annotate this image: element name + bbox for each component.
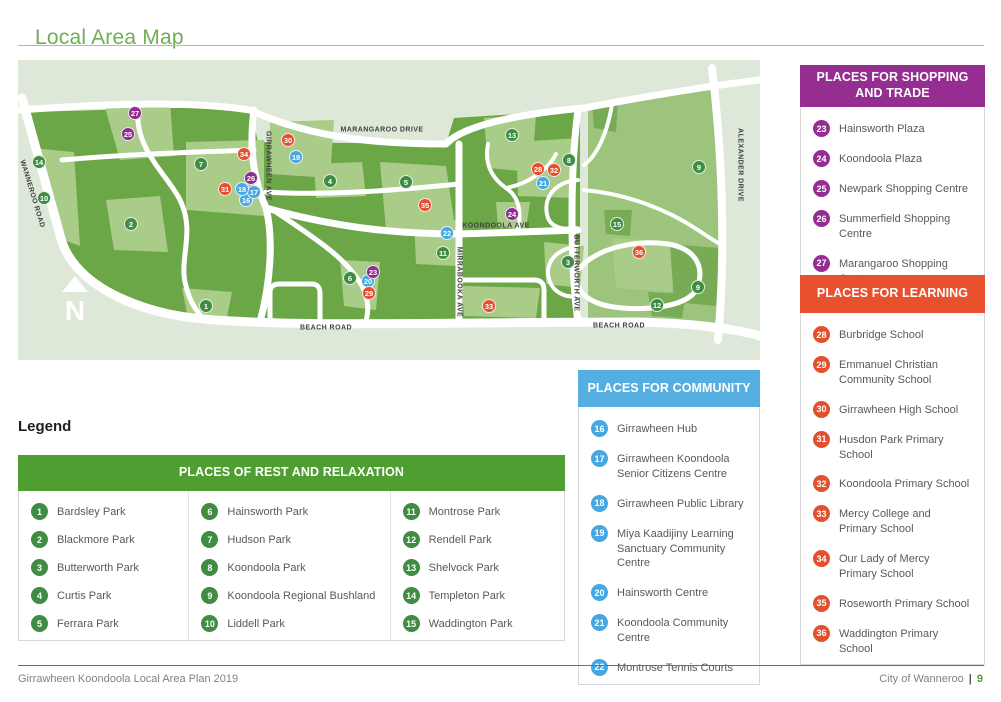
map-marker: 21 (536, 176, 550, 190)
legend-item: 24Koondoola Plaza (813, 150, 972, 167)
legend-panel-community-title: PLACES FOR COMMUNITY (578, 370, 760, 407)
legend-item: 28Burbridge School (813, 326, 972, 343)
item-number-badge: 27 (813, 255, 830, 272)
footer-divider (18, 665, 984, 666)
legend-panel-learning-title: PLACES FOR LEARNING (800, 275, 985, 313)
item-label: Girrawheen Hub (617, 420, 697, 437)
item-label: Montrose Tennis Courts (617, 659, 733, 676)
item-label: Koondoola Community Centre (617, 614, 747, 646)
document-page: Local Area Map (0, 0, 1001, 702)
item-label: Summerfield Shopping Centre (839, 210, 972, 242)
item-label: Curtis Park (57, 587, 111, 604)
item-label: Shelvock Park (429, 559, 499, 576)
legend-panel-shopping-title: PLACES FOR SHOPPING AND TRADE (800, 65, 985, 107)
legend-item: 33Mercy College and Primary School (813, 505, 972, 537)
item-number-badge: 30 (813, 401, 830, 418)
item-number-badge: 9 (201, 587, 218, 604)
map-marker: 8 (562, 153, 576, 167)
item-number-badge: 1 (31, 503, 48, 520)
item-label: Koondoola Park (227, 559, 305, 576)
legend-item: 20Hainsworth Centre (591, 584, 747, 601)
map-marker: 34 (237, 147, 251, 161)
map-marker: 19 (289, 150, 303, 164)
map-marker: 15 (610, 217, 624, 231)
item-label: Husdon Park Primary School (839, 431, 972, 463)
legend-column: 11Montrose Park12Rendell Park13Shelvock … (390, 491, 564, 640)
item-number-badge: 36 (813, 625, 830, 642)
item-label: Girrawheen High School (839, 401, 958, 418)
footer-publisher-name: City of Wanneroo (879, 673, 964, 685)
legend-item: 13Shelvock Park (403, 559, 556, 576)
legend-item: 25Newpark Shopping Centre (813, 180, 972, 197)
item-number-badge: 32 (813, 475, 830, 492)
map-marker: 5 (399, 175, 413, 189)
item-number-badge: 20 (591, 584, 608, 601)
legend-item: 34Our Lady of Mercy Primary School (813, 550, 972, 582)
page-title: Local Area Map (35, 26, 184, 50)
item-label: Butterworth Park (57, 559, 139, 576)
legend-panel-rest-list: 1Bardsley Park2Blackmore Park3Butterwort… (18, 491, 565, 641)
item-number-badge: 13 (403, 559, 420, 576)
map-marker: 9 (692, 160, 706, 174)
legend-item: 11Montrose Park (403, 503, 556, 520)
legend-column: 1Bardsley Park2Blackmore Park3Butterwort… (19, 491, 188, 640)
item-number-badge: 16 (591, 420, 608, 437)
item-number-badge: 11 (403, 503, 420, 520)
title-divider (18, 45, 984, 46)
road-label: BUTTERWORTH AVE (573, 234, 580, 311)
item-label: Girrawheen Koondoola Senior Citizens Cen… (617, 450, 730, 482)
item-number-badge: 7 (201, 531, 218, 548)
item-number-badge: 25 (813, 180, 830, 197)
map-marker: 33 (482, 299, 496, 313)
legend-panel-learning-list: 28Burbridge School29Emmanuel Christian C… (800, 313, 985, 665)
item-number-badge: 10 (201, 615, 218, 632)
legend-heading: Legend (18, 418, 71, 435)
legend-column: 6Hainsworth Park7Hudson Park8Koondoola P… (188, 491, 389, 640)
item-number-badge: 18 (591, 495, 608, 512)
item-label: Our Lady of Mercy Primary School (839, 550, 929, 582)
item-label: Rendell Park (429, 531, 492, 548)
map-marker: 14 (32, 155, 46, 169)
item-number-badge: 23 (813, 120, 830, 137)
map-marker: 9 (691, 280, 705, 294)
legend-item: 22Montrose Tennis Courts (591, 659, 747, 676)
legend-item: 2Blackmore Park (31, 531, 180, 548)
legend-item: 23Hainsworth Plaza (813, 120, 972, 137)
item-label: Montrose Park (429, 503, 501, 520)
item-number-badge: 22 (591, 659, 608, 676)
item-label: Templeton Park (429, 587, 505, 604)
map-marker: 36 (632, 245, 646, 259)
map-marker: 4 (323, 174, 337, 188)
item-label: Miya Kaadijiny Learning Sanctuary Commun… (617, 525, 747, 572)
map-marker: 2 (124, 217, 138, 231)
compass-north-label: N (65, 295, 85, 326)
map-marker: 31 (218, 182, 232, 196)
item-label: Liddell Park (227, 615, 284, 632)
map-marker: 28 (531, 162, 545, 176)
map-marker: 35 (418, 198, 432, 212)
item-number-badge: 29 (813, 356, 830, 373)
item-number-badge: 2 (31, 531, 48, 548)
item-label: Waddington Primary School (839, 625, 972, 657)
legend-item: 14Templeton Park (403, 587, 556, 604)
legend-item: 6Hainsworth Park (201, 503, 381, 520)
legend-panel-shopping-list: 23Hainsworth Plaza24Koondoola Plaza25New… (800, 107, 985, 295)
legend-item: 26Summerfield Shopping Centre (813, 210, 972, 242)
legend-item: 36Waddington Primary School (813, 625, 972, 657)
legend-item: 18Girrawheen Public Library (591, 495, 747, 512)
item-label: Emmanuel Christian Community School (839, 356, 938, 388)
item-label: Waddington Park (429, 615, 513, 632)
road-label: KOONDOOLA AVE (462, 223, 529, 230)
map-marker: 24 (505, 207, 519, 221)
map-marker: 1 (199, 299, 213, 313)
legend-item: 19Miya Kaadijiny Learning Sanctuary Comm… (591, 525, 747, 572)
item-label: Hainsworth Park (227, 503, 308, 520)
road-label: MARANGAROO DRIVE (340, 127, 423, 134)
item-number-badge: 8 (201, 559, 218, 576)
map-marker: 29 (362, 286, 376, 300)
footer-document-title: Girrawheen Koondoola Local Area Plan 201… (18, 673, 238, 685)
item-number-badge: 12 (403, 531, 420, 548)
legend-panel-shopping: PLACES FOR SHOPPING AND TRADE 23Hainswor… (800, 65, 985, 295)
legend-item: 16Girrawheen Hub (591, 420, 747, 437)
map-marker: 12 (650, 298, 664, 312)
legend-item: 29Emmanuel Christian Community School (813, 356, 972, 388)
item-number-badge: 31 (813, 431, 830, 448)
item-label: Burbridge School (839, 326, 923, 343)
map-marker: 11 (436, 246, 450, 260)
legend-item: 35Roseworth Primary School (813, 595, 972, 612)
map-marker: 13 (505, 128, 519, 142)
item-label: Girrawheen Public Library (617, 495, 744, 512)
legend-item: 21Koondoola Community Centre (591, 614, 747, 646)
item-number-badge: 6 (201, 503, 218, 520)
map-marker: 3 (561, 255, 575, 269)
map-marker: 17 (247, 185, 261, 199)
item-number-badge: 14 (403, 587, 420, 604)
legend-item: 4Curtis Park (31, 587, 180, 604)
item-label: Hainsworth Centre (617, 584, 708, 601)
item-number-badge: 3 (31, 559, 48, 576)
item-label: Ferrara Park (57, 615, 119, 632)
legend-panel-learning: PLACES FOR LEARNING 28Burbridge School29… (800, 275, 985, 665)
legend-item: 10Liddell Park (201, 615, 381, 632)
item-number-badge: 15 (403, 615, 420, 632)
footer-page-number: 9 (977, 673, 983, 685)
legend-item: 3Butterworth Park (31, 559, 180, 576)
legend-item: 17Girrawheen Koondoola Senior Citizens C… (591, 450, 747, 482)
legend-item: 9Koondoola Regional Bushland (201, 587, 381, 604)
item-number-badge: 17 (591, 450, 608, 467)
item-label: Mercy College and Primary School (839, 505, 931, 537)
item-number-badge: 21 (591, 614, 608, 631)
legend-item: 15Waddington Park (403, 615, 556, 632)
footer-publisher: City of Wanneroo|9 (879, 673, 983, 685)
map-marker: 23 (366, 265, 380, 279)
legend-item: 32Koondoola Primary School (813, 475, 972, 492)
legend-item: 8Koondoola Park (201, 559, 381, 576)
item-number-badge: 19 (591, 525, 608, 542)
road-label: GIRRAWHEEN AVE (265, 131, 272, 201)
map-marker: 30 (281, 133, 295, 147)
item-label: Bardsley Park (57, 503, 125, 520)
item-label: Newpark Shopping Centre (839, 180, 968, 197)
footer-separator: | (969, 673, 972, 685)
map-marker: 27 (128, 106, 142, 120)
item-number-badge: 4 (31, 587, 48, 604)
item-number-badge: 35 (813, 595, 830, 612)
legend-item: 7Hudson Park (201, 531, 381, 548)
item-label: Koondoola Plaza (839, 150, 922, 167)
road-label: MIRRABOOKA AVE (456, 247, 463, 318)
map-marker: 6 (343, 271, 357, 285)
item-number-badge: 26 (813, 210, 830, 227)
item-number-badge: 33 (813, 505, 830, 522)
legend-panel-rest-title: PLACES OF REST AND RELAXATION (18, 455, 565, 491)
map-marker: 26 (244, 171, 258, 185)
road-label: BEACH ROAD (593, 323, 645, 330)
item-label: Koondoola Primary School (839, 475, 969, 492)
legend-panel-rest: PLACES OF REST AND RELAXATION 1Bardsley … (18, 455, 565, 641)
map-marker: 7 (194, 157, 208, 171)
item-number-badge: 34 (813, 550, 830, 567)
map-marker: 10 (37, 191, 51, 205)
item-number-badge: 5 (31, 615, 48, 632)
item-number-badge: 28 (813, 326, 830, 343)
legend-item: 1Bardsley Park (31, 503, 180, 520)
legend-panel-community-list: 16Girrawheen Hub17Girrawheen Koondoola S… (578, 407, 760, 685)
item-label: Roseworth Primary School (839, 595, 969, 612)
item-label: Hainsworth Plaza (839, 120, 925, 137)
legend-item: 5Ferrara Park (31, 615, 180, 632)
legend-item: 31Husdon Park Primary School (813, 431, 972, 463)
road-label: ALEXANDER DRIVE (737, 128, 744, 202)
map-marker: 22 (440, 226, 454, 240)
item-label: Hudson Park (227, 531, 291, 548)
map-marker: 25 (121, 127, 135, 141)
item-number-badge: 24 (813, 150, 830, 167)
legend-item: 30Girrawheen High School (813, 401, 972, 418)
legend-item: 12Rendell Park (403, 531, 556, 548)
legend-panel-community: PLACES FOR COMMUNITY 16Girrawheen Hub17G… (578, 370, 760, 685)
road-label: BEACH ROAD (300, 325, 352, 332)
local-area-map: N MARANGAROO DRIVEWANNEROO ROADGIRRAWHEE… (18, 60, 760, 360)
map-marker: 32 (547, 163, 561, 177)
item-label: Blackmore Park (57, 531, 135, 548)
item-label: Koondoola Regional Bushland (227, 587, 375, 604)
area-map-graphic: N (18, 60, 760, 360)
